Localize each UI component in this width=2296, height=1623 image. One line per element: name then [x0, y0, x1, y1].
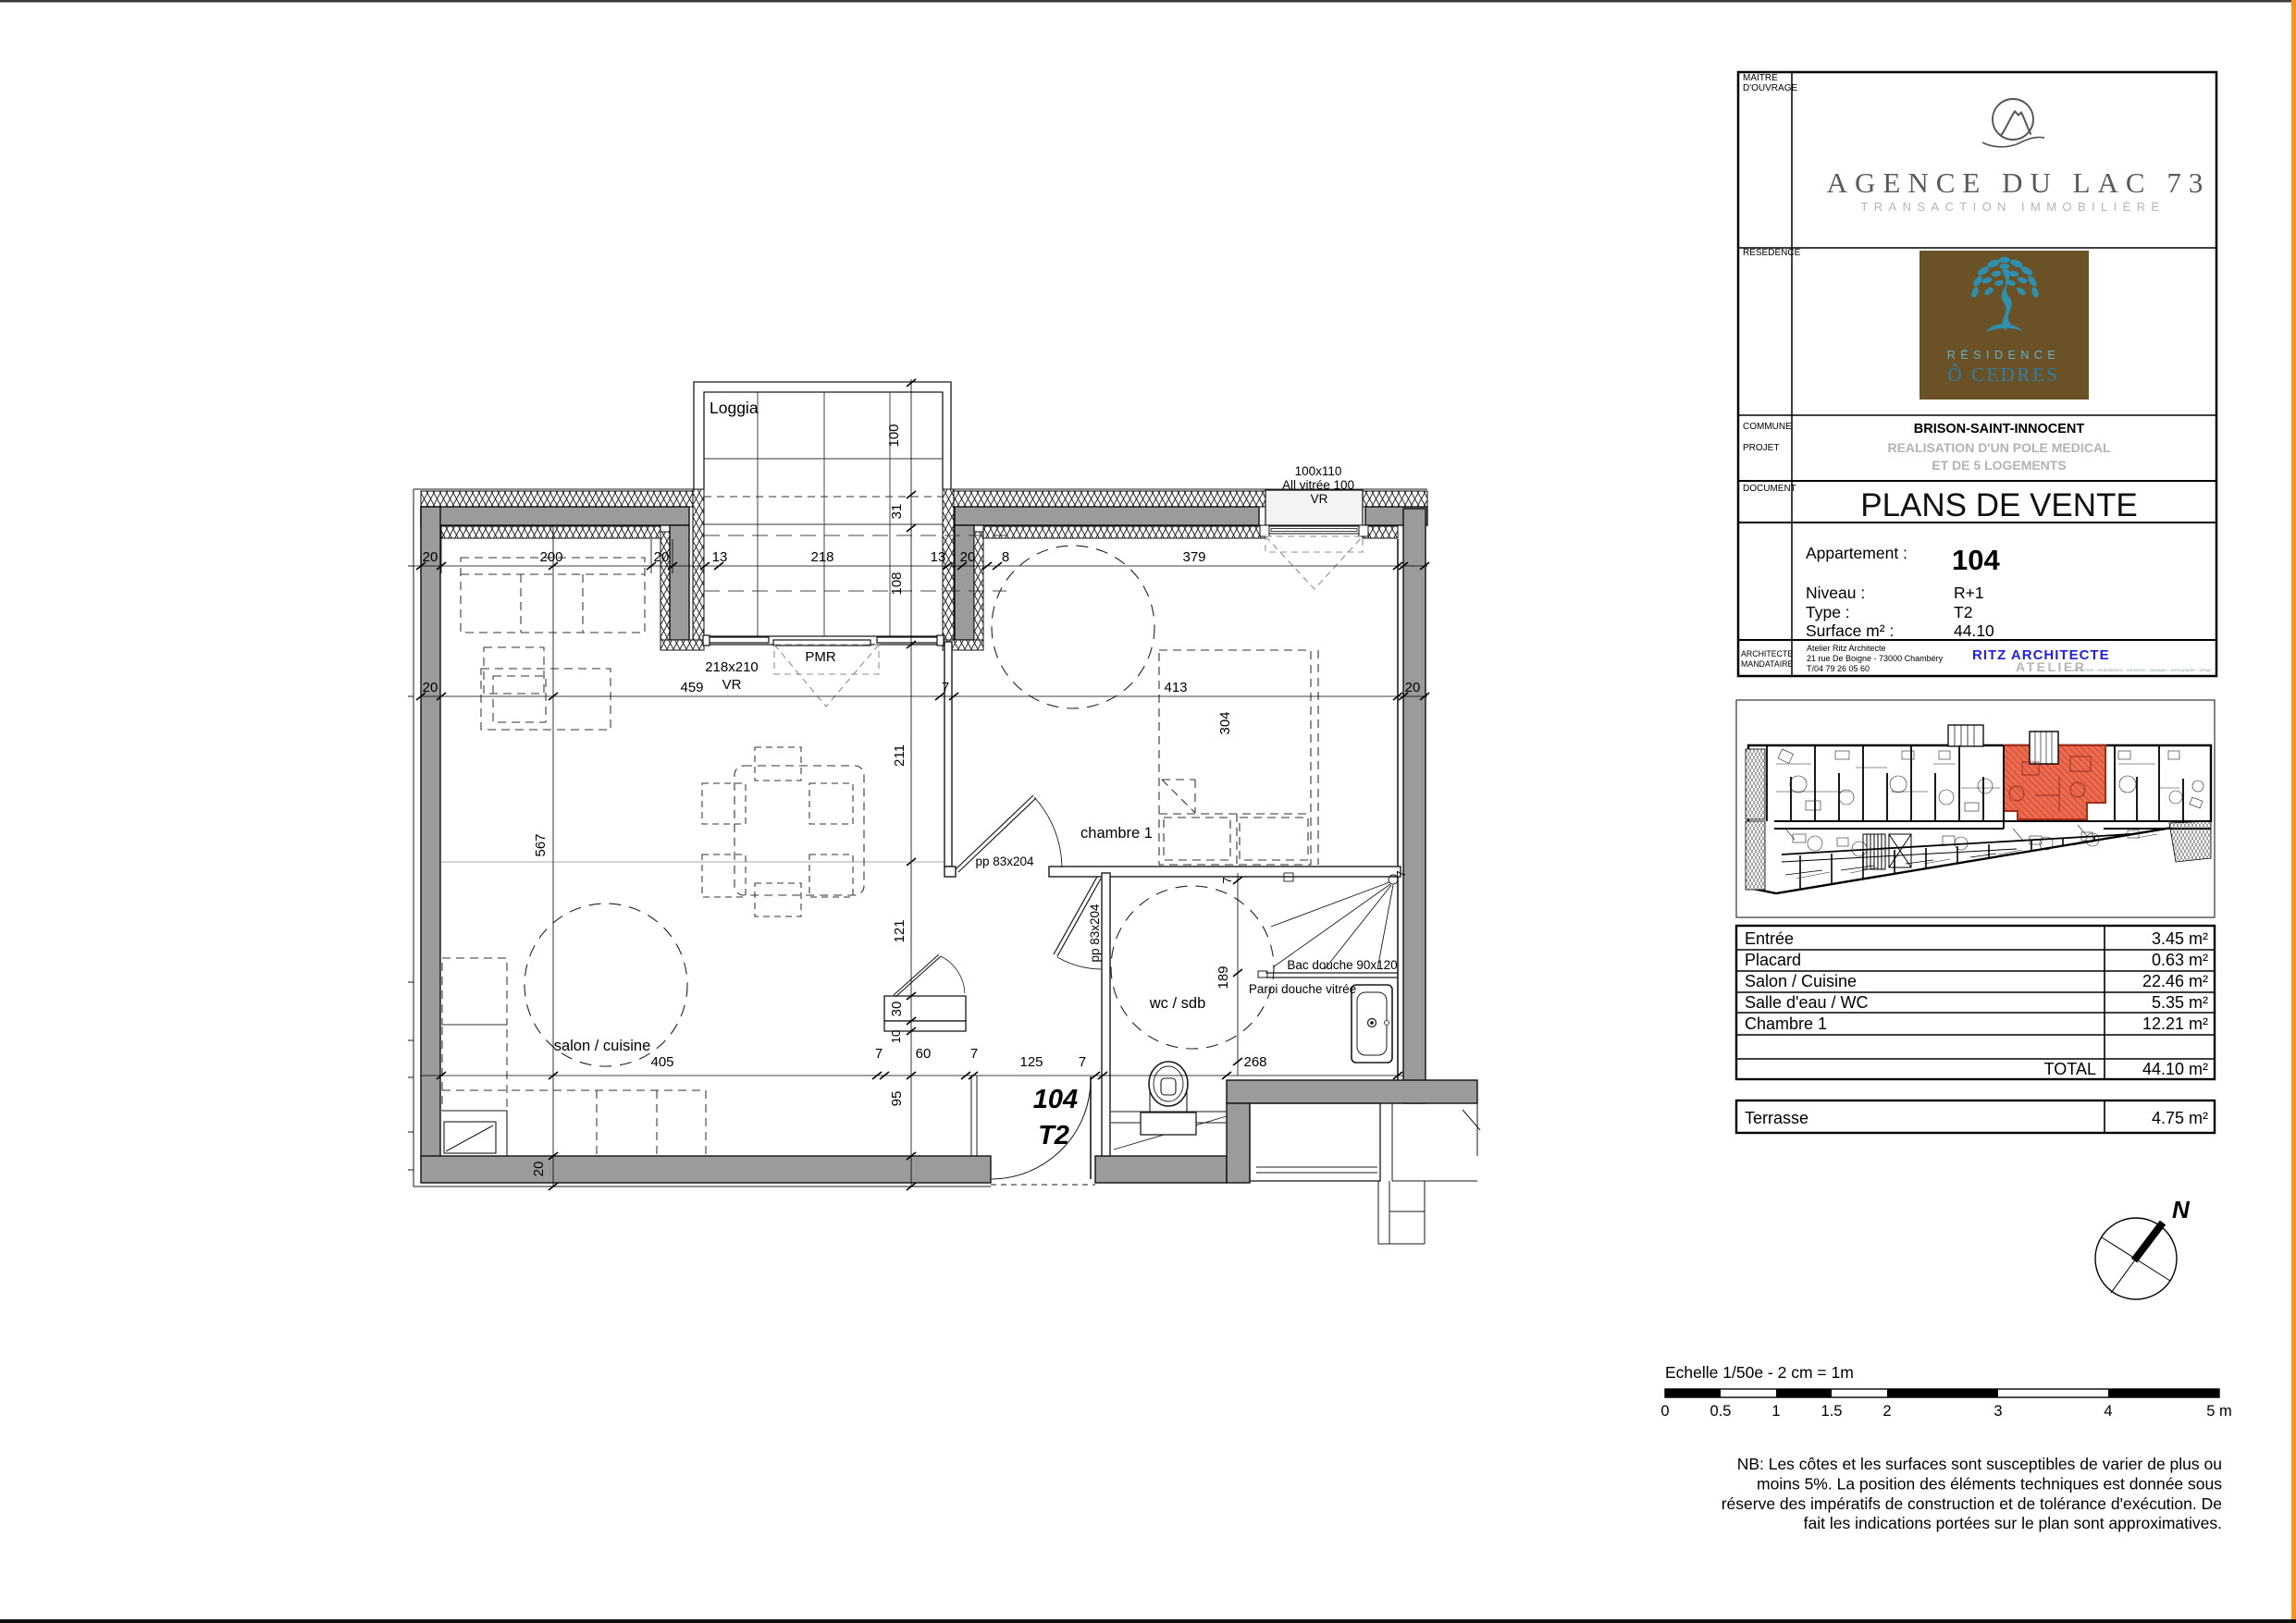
svg-text:12.21 m²: 12.21 m² [2142, 1014, 2208, 1033]
svg-text:Ô CEDRES: Ô CEDRES [1948, 363, 2060, 386]
svg-text:22.46 m²: 22.46 m² [2142, 972, 2208, 990]
svg-text:Niveau :: Niveau : [1806, 584, 1865, 602]
svg-text:20: 20 [1405, 680, 1421, 695]
svg-text:VR: VR [1311, 492, 1328, 506]
svg-text:31: 31 [889, 504, 905, 520]
svg-text:121: 121 [892, 919, 907, 942]
svg-text:RESEDENCE: RESEDENCE [1743, 248, 1801, 258]
svg-text:218: 218 [810, 549, 833, 565]
svg-text:Type :: Type : [1806, 603, 1850, 621]
svg-text:R+1: R+1 [1954, 584, 1984, 602]
svg-text:405: 405 [650, 1054, 673, 1070]
svg-text:RÉSIDENCE: RÉSIDENCE [1947, 348, 2060, 362]
svg-text:DOCUMENT: DOCUMENT [1743, 484, 1796, 494]
svg-text:4.75 m²: 4.75 m² [2152, 1109, 2208, 1127]
svg-text:PLANS DE VENTE: PLANS DE VENTE [1860, 487, 2138, 523]
svg-text:7: 7 [970, 1046, 978, 1062]
svg-text:0.63 m²: 0.63 m² [2152, 951, 2208, 969]
svg-text:wc / sdb: wc / sdb [1149, 995, 1206, 1012]
svg-text:architecture . rehabilitations: architecture . rehabilitations . urbanis… [2072, 668, 2212, 672]
svg-text:13: 13 [712, 549, 728, 565]
svg-text:Entrée: Entrée [1745, 929, 1794, 948]
svg-text:413: 413 [1164, 680, 1187, 695]
svg-text:T2: T2 [1954, 603, 1972, 621]
svg-text:60: 60 [916, 1046, 932, 1062]
svg-text:2: 2 [1882, 1403, 1891, 1420]
svg-text:NB: Les côtes et les surfaces: NB: Les côtes et les surfaces sont susce… [1737, 1455, 2222, 1473]
svg-text:5.35 m²: 5.35 m² [2152, 993, 2208, 1012]
svg-text:30: 30 [889, 1002, 905, 1017]
svg-text:7: 7 [875, 1046, 883, 1062]
svg-text:3.45 m²: 3.45 m² [2152, 929, 2208, 948]
svg-text:salon / cuisine: salon / cuisine [554, 1038, 651, 1054]
svg-text:TRANSACTION IMMOBILIÈRE: TRANSACTION IMMOBILIÈRE [1860, 200, 2165, 214]
svg-text:Placard: Placard [1745, 951, 1801, 969]
svg-text:pp 83x204: pp 83x204 [1088, 904, 1102, 963]
svg-text:4: 4 [2104, 1403, 2112, 1420]
svg-text:PROJET: PROJET [1743, 443, 1779, 453]
svg-text:T/04 79 26 05 60: T/04 79 26 05 60 [1807, 664, 1870, 673]
svg-text:chambre 1: chambre 1 [1080, 825, 1153, 842]
svg-text:20: 20 [531, 1162, 547, 1177]
svg-text:20: 20 [960, 549, 976, 565]
svg-text:Atelier Ritz Architecte: Atelier Ritz Architecte [1807, 644, 1886, 653]
svg-text:104: 104 [1033, 1085, 1078, 1114]
svg-text:Appartement :: Appartement : [1806, 544, 1907, 562]
svg-text:7: 7 [942, 680, 949, 695]
svg-text:44.10: 44.10 [1954, 621, 1994, 640]
svg-text:0.5: 0.5 [1710, 1403, 1732, 1420]
svg-text:MAÎTRE: MAÎTRE [1743, 71, 1778, 83]
svg-text:20: 20 [654, 549, 670, 565]
svg-text:TOTAL: TOTAL [2044, 1060, 2096, 1078]
svg-text:AGENCE DU LAC 73: AGENCE DU LAC 73 [1827, 166, 2211, 199]
svg-text:44.10 m²: 44.10 m² [2142, 1060, 2208, 1078]
svg-text:200: 200 [539, 549, 562, 565]
svg-text:Paroi douche vitrée: Paroi douche vitrée [1249, 982, 1356, 996]
svg-text:100: 100 [886, 424, 902, 447]
svg-text:COMMUNE: COMMUNE [1743, 422, 1792, 432]
svg-text:réserve des impératifs de cons: réserve des impératifs de construction e… [1722, 1494, 2222, 1513]
svg-text:REALISATION D'UN POLE MEDICAL: REALISATION D'UN POLE MEDICAL [1887, 440, 2111, 455]
svg-text:fait les indications portées s: fait les indications portées sur le plan… [1804, 1514, 2222, 1532]
svg-text:13: 13 [931, 549, 946, 565]
svg-text:20: 20 [423, 680, 438, 695]
svg-text:Chambre 1: Chambre 1 [1745, 1014, 1827, 1033]
svg-text:7: 7 [1079, 1054, 1086, 1070]
svg-text:PMR: PMR [805, 649, 836, 665]
svg-text:ET DE 5 LOGEMENTS: ET DE 5 LOGEMENTS [1932, 458, 2066, 473]
svg-text:379: 379 [1182, 549, 1205, 565]
svg-text:D'OUVRAGE: D'OUVRAGE [1743, 83, 1797, 93]
svg-text:189: 189 [1216, 965, 1231, 989]
svg-text:Salle d'eau / WC: Salle d'eau / WC [1745, 993, 1869, 1012]
svg-text:304: 304 [1217, 711, 1233, 734]
svg-text:8: 8 [1002, 549, 1009, 565]
svg-text:MANDATAIRE: MANDATAIRE [1741, 659, 1794, 669]
svg-text:VR: VR [722, 677, 742, 693]
svg-text:108: 108 [889, 572, 905, 595]
svg-text:Bac douche 90x120: Bac douche 90x120 [1287, 958, 1397, 972]
svg-text:218x210: 218x210 [705, 659, 759, 675]
svg-text:All vitrée 100: All vitrée 100 [1282, 478, 1354, 492]
svg-text:Terrasse: Terrasse [1745, 1109, 1808, 1127]
svg-text:268: 268 [1243, 1054, 1266, 1070]
svg-text:1: 1 [1771, 1403, 1780, 1420]
svg-text:Echelle 1/50e - 2 cm = 1m: Echelle 1/50e - 2 cm = 1m [1665, 1363, 1854, 1382]
svg-text:BRISON-SAINT-INNOCENT: BRISON-SAINT-INNOCENT [1914, 422, 2085, 436]
svg-text:20: 20 [423, 549, 438, 565]
svg-text:Salon / Cuisine: Salon / Cuisine [1745, 972, 1857, 990]
svg-text:10: 10 [889, 1030, 903, 1043]
svg-text:T2: T2 [1038, 1121, 1069, 1150]
svg-text:N: N [2172, 1196, 2191, 1223]
svg-text:0: 0 [1660, 1403, 1669, 1420]
svg-text:125: 125 [1019, 1054, 1043, 1070]
svg-text:5 m: 5 m [2206, 1403, 2232, 1420]
svg-text:7: 7 [1394, 870, 1408, 877]
svg-text:moins 5%. La position des élém: moins 5%. La position des éléments techn… [1757, 1474, 2222, 1493]
svg-text:pp 83x204: pp 83x204 [975, 855, 1034, 868]
svg-text:104: 104 [1952, 544, 2000, 576]
svg-text:3: 3 [1994, 1403, 2002, 1420]
svg-text:Loggia: Loggia [710, 399, 759, 417]
svg-text:Surface m² :: Surface m² : [1806, 621, 1894, 640]
svg-text:7: 7 [1220, 877, 1234, 883]
svg-text:211: 211 [892, 744, 907, 767]
svg-text:567: 567 [533, 833, 549, 856]
svg-text:ARCHITECTE: ARCHITECTE [1741, 649, 1793, 658]
svg-text:95: 95 [889, 1091, 905, 1107]
svg-text:21 rue De Boigne - 73000 Chamb: 21 rue De Boigne - 73000 Chambéry [1807, 654, 1944, 663]
svg-text:459: 459 [680, 680, 703, 695]
svg-text:1.5: 1.5 [1821, 1403, 1843, 1420]
svg-text:100x110: 100x110 [1295, 464, 1342, 478]
